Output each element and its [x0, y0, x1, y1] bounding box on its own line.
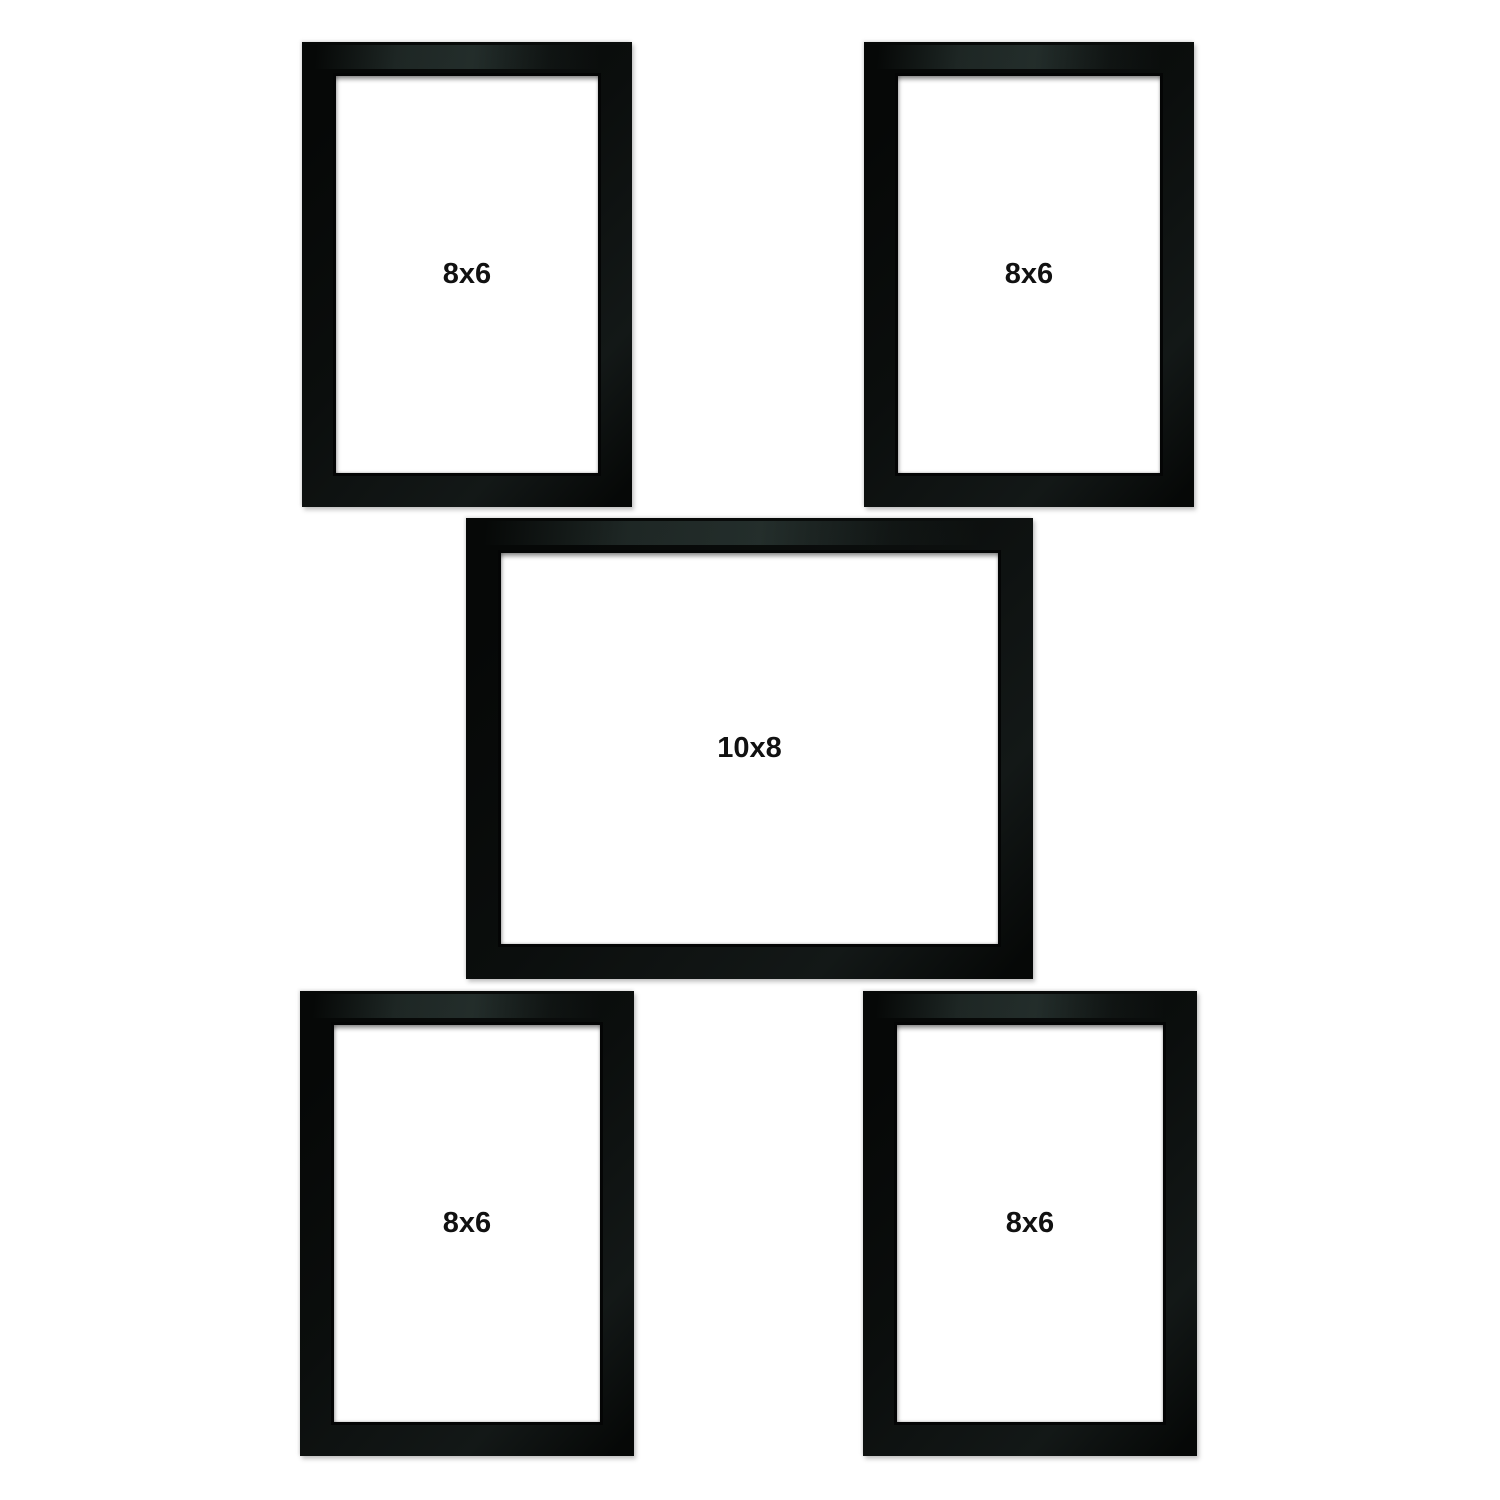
frame-gloss-highlight [308, 994, 626, 1018]
product-image-canvas: 8x6 8x6 10x8 8x6 8x6 [0, 0, 1500, 1500]
frame-size-label: 8x6 [443, 260, 491, 289]
frame-size-label: 8x6 [1005, 260, 1053, 289]
frame-opening: 8x6 [333, 73, 601, 476]
frame-opening: 8x6 [895, 73, 1163, 476]
frame-opening: 8x6 [331, 1022, 603, 1425]
frame-gloss-highlight [474, 521, 1025, 545]
photo-frame-bottom-left: 8x6 [300, 991, 634, 1456]
frame-size-label: 8x6 [1006, 1209, 1054, 1238]
frame-gloss-highlight [871, 994, 1189, 1018]
photo-frame-top-left: 8x6 [302, 42, 632, 507]
frame-size-label: 10x8 [717, 734, 782, 763]
photo-frame-middle: 10x8 [466, 518, 1033, 979]
frame-gloss-highlight [872, 45, 1186, 69]
photo-frame-bottom-right: 8x6 [863, 991, 1197, 1456]
frame-size-label: 8x6 [443, 1209, 491, 1238]
frame-gloss-highlight [310, 45, 624, 69]
frame-opening: 10x8 [498, 550, 1001, 947]
photo-frame-top-right: 8x6 [864, 42, 1194, 507]
frame-opening: 8x6 [894, 1022, 1166, 1425]
